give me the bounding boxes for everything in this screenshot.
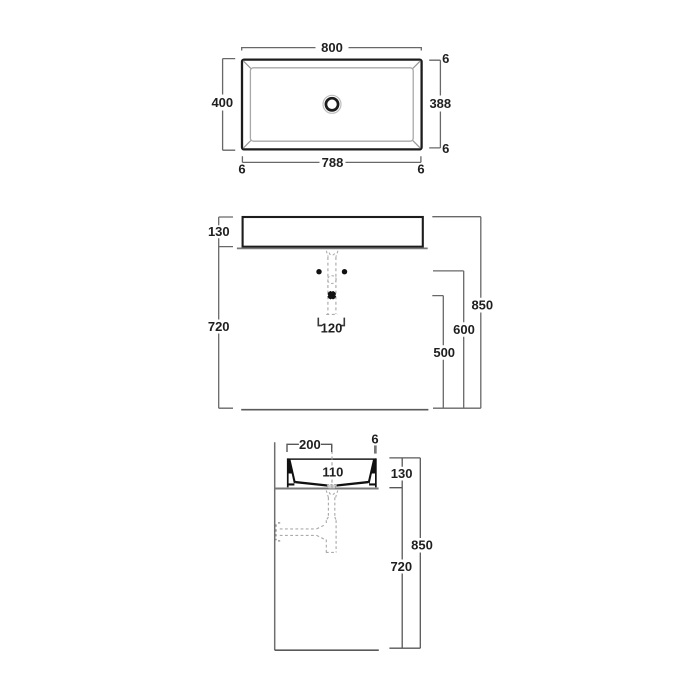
svg-text:500: 500 (433, 345, 455, 360)
svg-text:850: 850 (471, 298, 493, 313)
svg-text:800: 800 (321, 40, 343, 55)
svg-text:720: 720 (390, 559, 412, 574)
svg-text:6: 6 (238, 161, 245, 176)
svg-text:6: 6 (417, 161, 424, 176)
svg-text:400: 400 (211, 95, 233, 110)
svg-text:120: 120 (321, 320, 343, 335)
svg-text:720: 720 (208, 319, 230, 334)
svg-text:6: 6 (442, 141, 449, 156)
svg-text:388: 388 (429, 96, 451, 111)
svg-text:850: 850 (411, 538, 433, 553)
svg-text:600: 600 (453, 322, 475, 337)
svg-text:788: 788 (322, 155, 344, 170)
svg-text:6: 6 (442, 51, 449, 66)
svg-text:6: 6 (371, 432, 378, 447)
svg-text:130: 130 (391, 466, 413, 481)
svg-text:110: 110 (322, 465, 343, 480)
svg-text:130: 130 (208, 224, 230, 239)
svg-text:200: 200 (299, 437, 321, 452)
